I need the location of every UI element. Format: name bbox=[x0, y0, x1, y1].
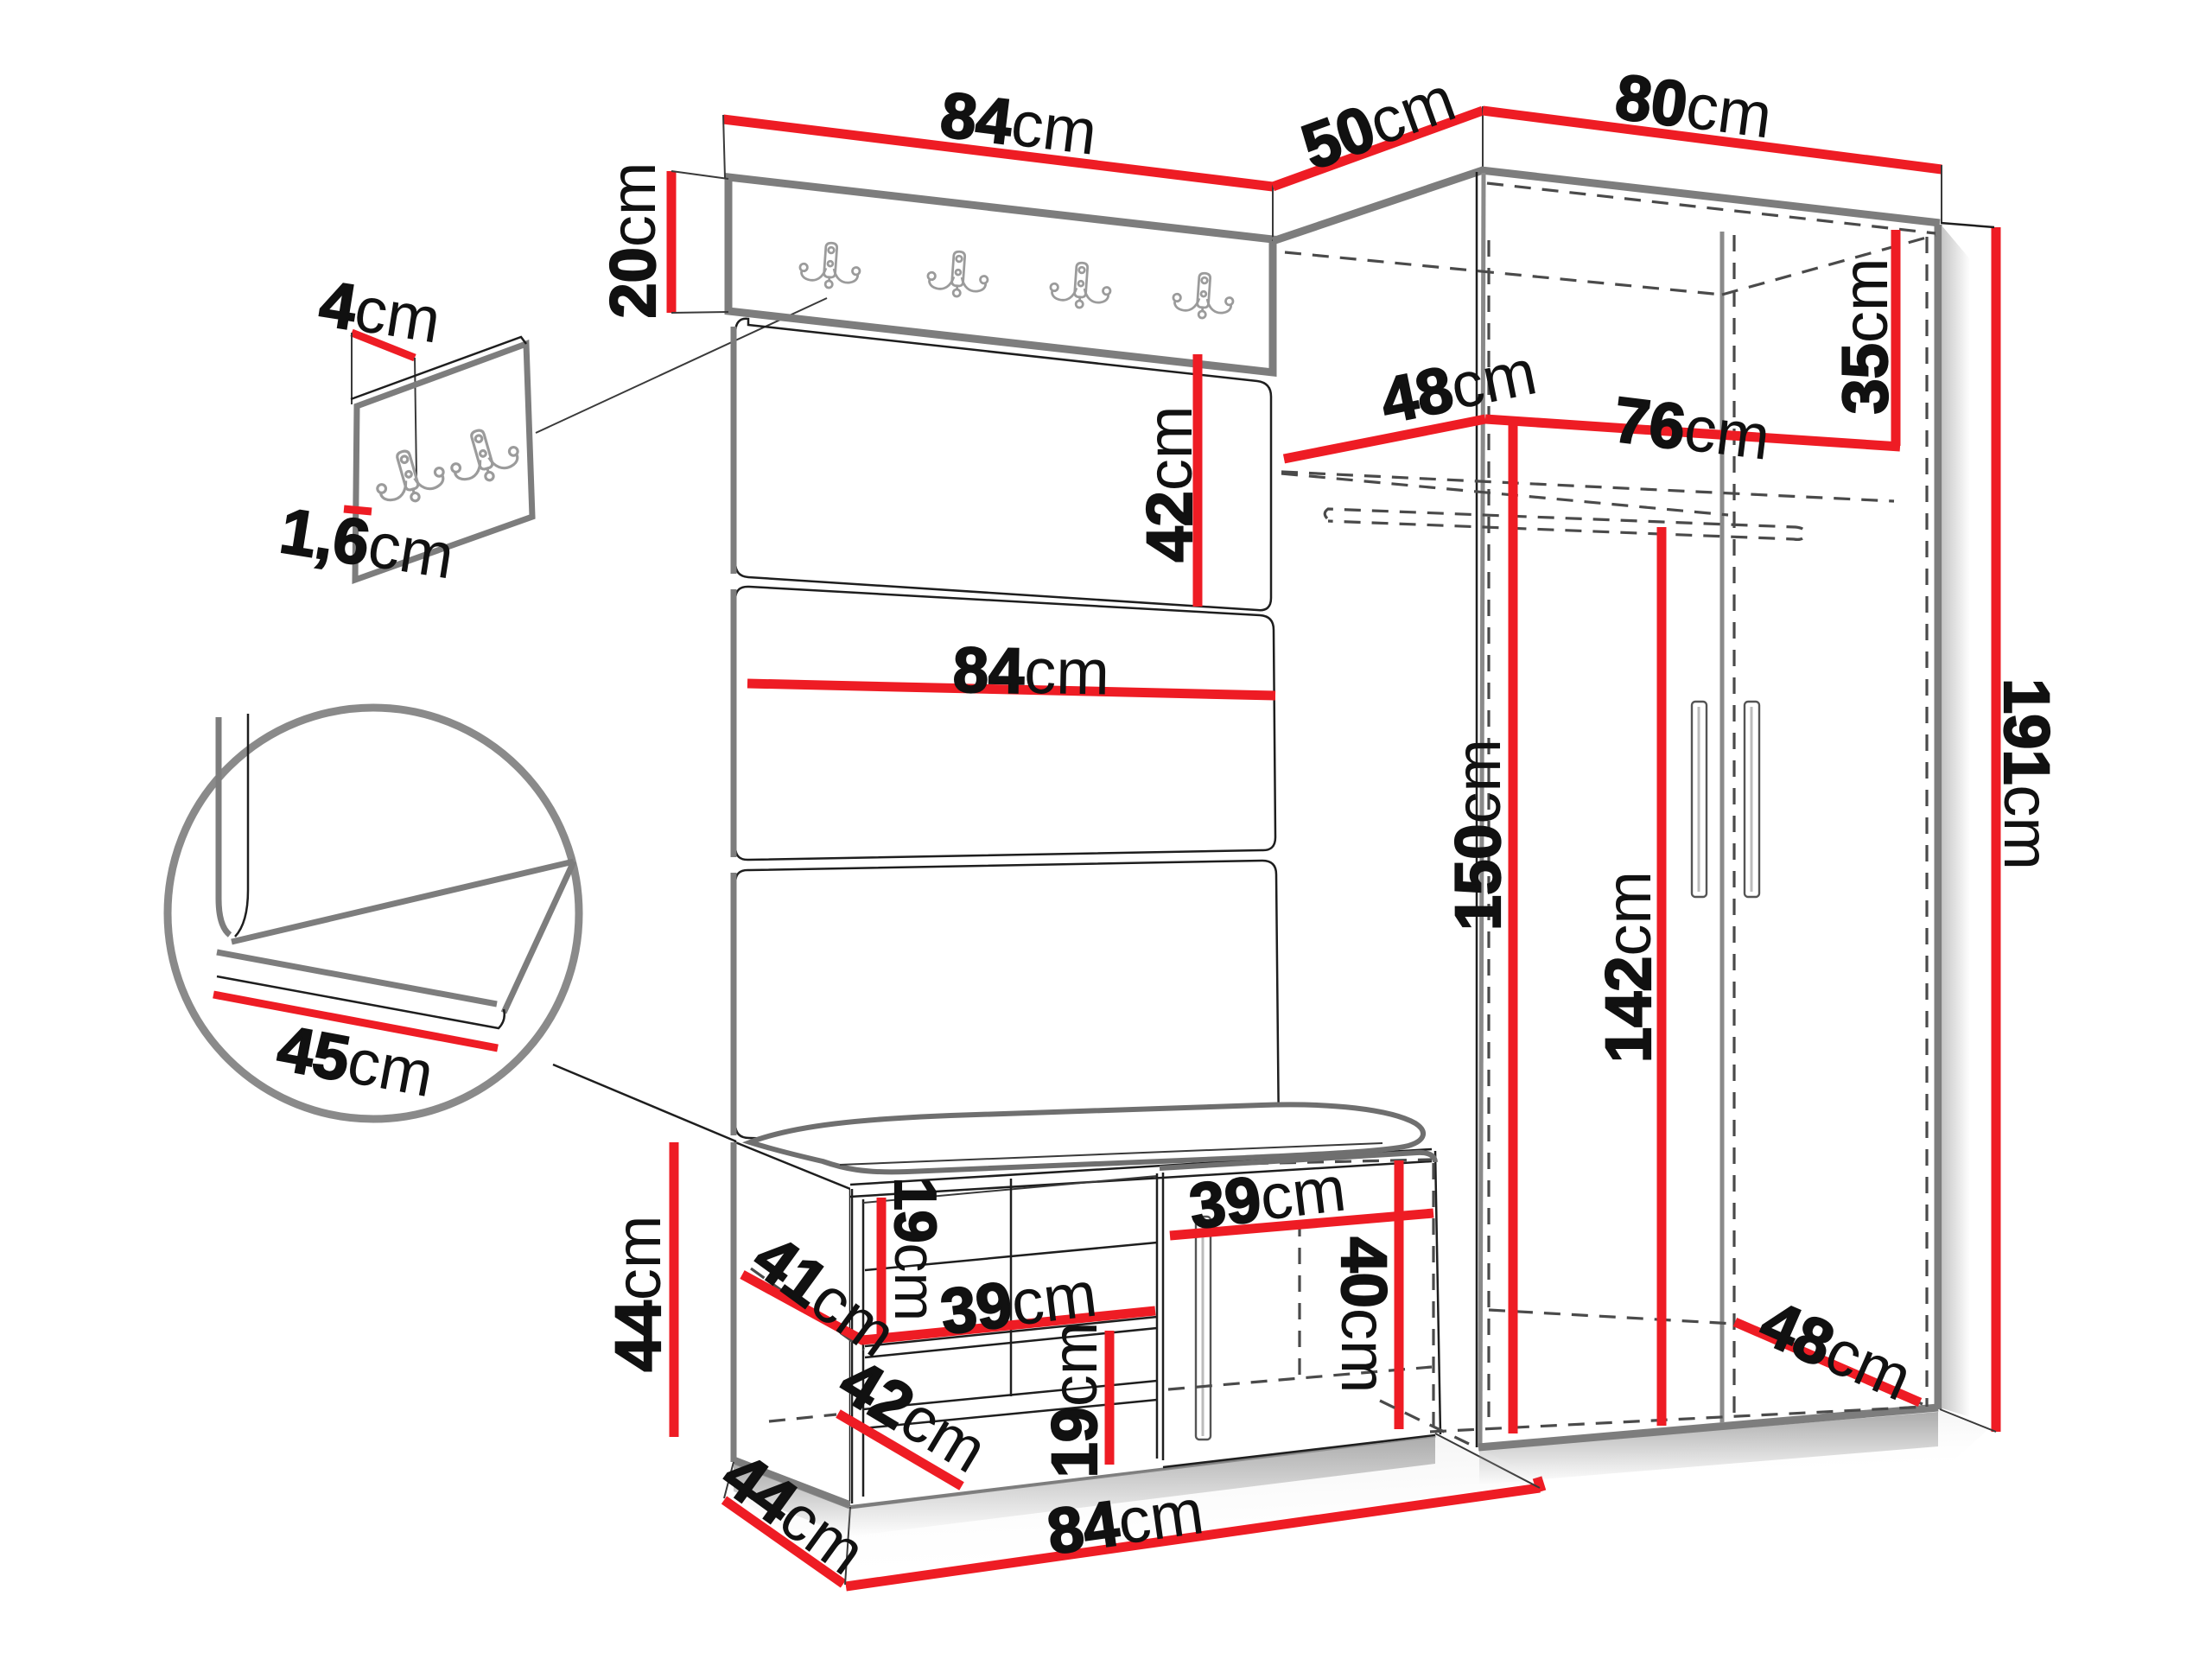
svg-text:150cm: 150cm bbox=[1442, 739, 1514, 931]
svg-text:40cm: 40cm bbox=[1328, 1237, 1400, 1394]
svg-text:44cm: 44cm bbox=[602, 1216, 674, 1372]
svg-text:84cm: 84cm bbox=[952, 633, 1109, 708]
svg-text:191cm: 191cm bbox=[1991, 678, 2063, 870]
svg-text:20cm: 20cm bbox=[597, 162, 669, 319]
svg-text:142cm: 142cm bbox=[1592, 871, 1664, 1063]
svg-text:42cm: 42cm bbox=[1134, 406, 1205, 563]
svg-text:35cm: 35cm bbox=[1829, 258, 1901, 415]
svg-text:19cm: 19cm bbox=[1039, 1322, 1110, 1478]
svg-text:19cm: 19cm bbox=[882, 1178, 948, 1321]
